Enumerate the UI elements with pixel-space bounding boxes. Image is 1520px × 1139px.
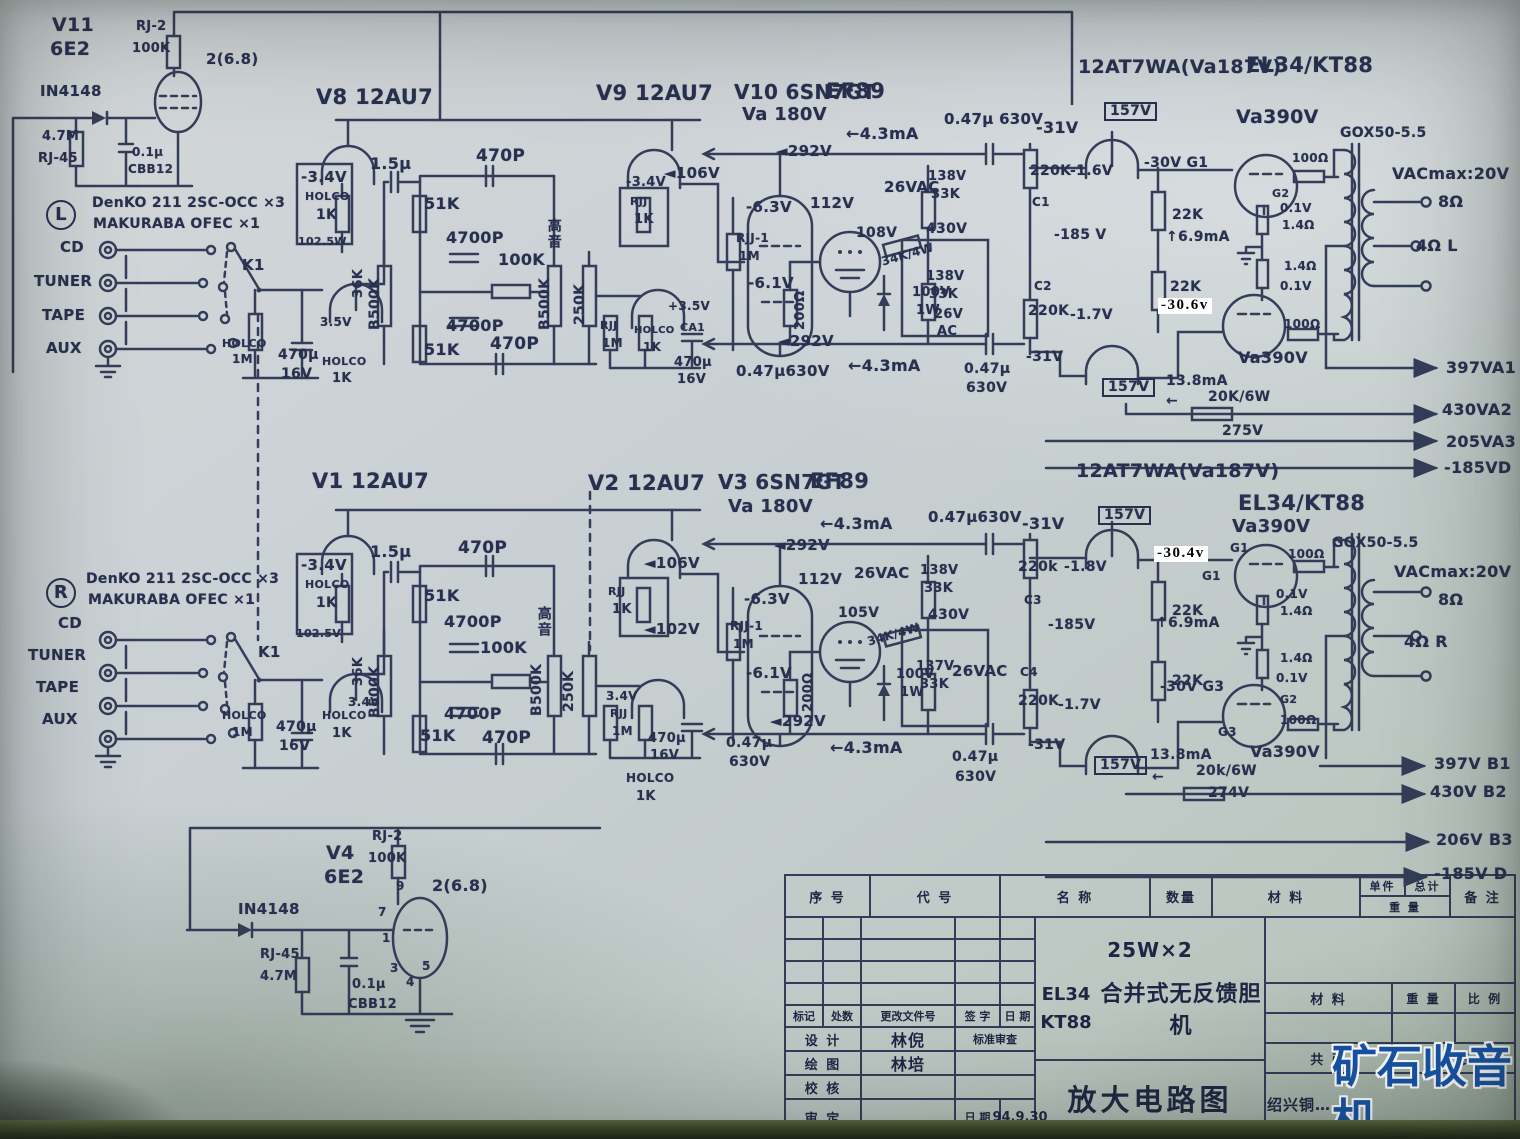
schematic-label: 0.47μ xyxy=(964,362,1010,377)
schematic-label: ← xyxy=(1166,394,1178,409)
schematic-label: 33K xyxy=(920,678,949,692)
schematic-label: 36K xyxy=(352,269,366,298)
schematic-label: CD xyxy=(60,240,84,256)
schematic-label: ◄292V xyxy=(778,334,834,350)
schematic-label: 0.1V xyxy=(1276,588,1308,601)
schematic-photo: V116E2RJ-2100K2(6.8)IN41484.7MRJ-450.1μC… xyxy=(0,0,1520,1139)
schematic-label: CD xyxy=(58,616,82,632)
schematic-label: 220K xyxy=(1028,304,1069,319)
schematic-label: G1 xyxy=(1230,542,1249,555)
schematic-label: 1K xyxy=(643,341,661,354)
schematic-label: C1 xyxy=(1032,196,1050,209)
schematic-label: 0.1μ xyxy=(132,146,163,159)
schematic-label: -31V xyxy=(1026,350,1063,365)
schematic-label: AUX xyxy=(46,341,82,357)
schematic-label: 138V xyxy=(920,564,958,578)
schematic-label: 高音 xyxy=(536,606,551,638)
schematic-label: VACmax:20V xyxy=(1392,166,1509,183)
tb-col-total: 总计 xyxy=(1405,875,1450,896)
schematic-label: C3 xyxy=(1024,594,1042,607)
schematic-label: L xyxy=(46,200,76,230)
schematic-label: 137V xyxy=(916,660,954,674)
schematic-label: GOX50-5.5 xyxy=(1340,126,1426,141)
tb-sheet-no: 第 张 xyxy=(1392,1043,1515,1073)
schematic-label: 1M xyxy=(232,353,253,366)
schematic-label: 20k/6W xyxy=(1196,764,1257,779)
schematic-label: 1.4Ω xyxy=(1280,605,1313,618)
schematic-label: 430V B2 xyxy=(1430,784,1507,801)
tb-col-qty: 数量 xyxy=(1150,875,1212,917)
schematic-label: 13.8mA xyxy=(1166,374,1228,389)
tb-rev-sign: 签 字 xyxy=(955,1005,1000,1027)
schematic-label: HOLCO xyxy=(305,191,350,203)
schematic-label: EF89 xyxy=(810,470,869,492)
schematic-label: 1K xyxy=(316,208,337,223)
schematic-label: 20K/6W xyxy=(1208,390,1270,405)
schematic-label: 206V B3 xyxy=(1436,832,1513,849)
schematic-label: C4 xyxy=(1020,666,1038,679)
schematic-label: ◄106V xyxy=(664,166,720,182)
schematic-label: -1.7V xyxy=(1070,308,1113,323)
schematic-label: 1.4Ω xyxy=(1282,219,1315,232)
schematic-label: 13.8mA xyxy=(1150,748,1212,763)
schematic-label: -1.7V xyxy=(1058,698,1101,713)
schematic-label: 36K xyxy=(352,657,366,686)
schematic-label: 1M xyxy=(602,337,623,350)
schematic-label: 2(6.8) xyxy=(432,878,488,895)
tb-col-index: 序 号 xyxy=(785,875,870,917)
schematic-label: 12AT7WA(Va187V) xyxy=(1076,462,1279,482)
schematic-label: HOLCO xyxy=(222,338,267,350)
schematic-label: 51K xyxy=(424,342,460,359)
schematic-label: 4Ω L xyxy=(1416,238,1458,255)
schematic-label: C2 xyxy=(1034,280,1052,293)
schematic-label: ←4.3mA xyxy=(830,740,903,757)
schematic-label: TAPE xyxy=(36,680,79,696)
schematic-label: 220k xyxy=(1018,560,1058,575)
schematic-label: ←4.3mA xyxy=(846,126,919,143)
schematic-label: -3.4V xyxy=(301,170,347,186)
schematic-label: 高音 xyxy=(546,218,561,250)
schematic-label: 102.5V xyxy=(296,628,341,640)
schematic-label: 100K xyxy=(498,252,545,269)
tb-col-material: 材 料 xyxy=(1212,875,1360,917)
schematic-label: 3.4V xyxy=(348,696,380,709)
schematic-label: Va390V xyxy=(1232,518,1310,537)
schematic-label: IN4148 xyxy=(238,902,300,918)
schematic-label: 630V xyxy=(966,381,1007,396)
schematic-label: 1 xyxy=(382,932,391,945)
schematic-label: ↑6.9mA xyxy=(1156,616,1220,631)
schematic-label: 100Ω xyxy=(1292,152,1328,165)
schematic-label: 470P xyxy=(458,540,507,558)
schematic-label: 157V xyxy=(1098,506,1151,525)
tb-row-check-label: 校 核 xyxy=(785,1075,861,1099)
schematic-label: 7 xyxy=(378,906,387,919)
schematic-label: ◄106V xyxy=(644,556,700,572)
schematic-label: 157V xyxy=(1102,378,1155,397)
schematic-label: HOLCO xyxy=(222,710,267,722)
schematic-label: 138V xyxy=(928,170,966,184)
schematic-label: 1M xyxy=(739,250,760,263)
schematic-label: -31V xyxy=(1028,738,1065,753)
schematic-label: TUNER xyxy=(28,648,86,664)
schematic-label: 1.4Ω xyxy=(1284,260,1317,273)
schematic-label: 470P xyxy=(476,148,525,166)
schematic-label: HOLCO xyxy=(626,772,674,785)
schematic-label: 220K xyxy=(1018,694,1059,709)
schematic-label: 0.47μ630V xyxy=(928,510,1022,526)
tb-inner-scale: 比 例 xyxy=(1455,983,1515,1013)
schematic-label: RJ-45 xyxy=(260,948,300,962)
schematic-label: -30V G3 xyxy=(1160,680,1224,695)
schematic-label: V8 12AU7 xyxy=(316,86,433,108)
schematic-label: 205VA3 xyxy=(1446,434,1516,451)
schematic-label: B500K xyxy=(530,664,545,716)
schematic-label: 16V xyxy=(677,373,706,387)
schematic-label: 470μ xyxy=(674,356,712,370)
schematic-label: RJ-2 xyxy=(372,830,403,844)
schematic-label: 100K xyxy=(132,42,170,56)
schematic-label: RJJ xyxy=(608,586,626,598)
schematic-label: VACmax:20V xyxy=(1394,564,1511,581)
schematic-label: K1 xyxy=(242,258,265,274)
schematic-label: R xyxy=(46,578,76,608)
schematic-label: Va390V xyxy=(1250,744,1320,761)
schematic-label: 200Ω xyxy=(802,673,816,712)
schematic-label: RJJ xyxy=(600,320,618,332)
schematic-label: CBB12 xyxy=(348,998,397,1012)
schematic-label: RJJ-1 xyxy=(730,620,763,633)
schematic-label: B500K xyxy=(368,278,383,330)
schematic-label: 5 xyxy=(422,960,431,973)
schematic-label: 0.1V xyxy=(1280,280,1312,293)
schematic-label: Va390V xyxy=(1236,108,1319,128)
schematic-label: 1K xyxy=(332,727,352,741)
schematic-label: 26V xyxy=(934,308,963,322)
schematic-label: 1K xyxy=(612,603,632,617)
schematic-label: 6E2 xyxy=(324,868,364,888)
title-block: 序 号 代 号 名 称 数量 材 料 单件 总计 重 量 备 注 标记 处数 更… xyxy=(785,875,1515,1135)
tb-project-tube2: KT88 xyxy=(1035,1008,1097,1036)
schematic-label: Va 180V xyxy=(728,498,813,517)
schematic-label: V9 12AU7 xyxy=(596,82,713,104)
schematic-label: G2 xyxy=(1280,694,1297,706)
schematic-label: 0.47μ 630V xyxy=(944,112,1043,128)
tb-col-unit: 单件 xyxy=(1360,875,1405,896)
tb-col-weight: 重 量 xyxy=(1360,896,1450,917)
schematic-label: 100K xyxy=(368,852,406,866)
schematic-label: 1.4Ω xyxy=(1280,652,1313,665)
schematic-label: 0.1μ xyxy=(352,978,386,992)
schematic-label: 220K-1.6V xyxy=(1030,164,1113,179)
schematic-label: 1K xyxy=(316,596,337,611)
schematic-label: 1M xyxy=(232,726,253,739)
schematic-label: -30.6v xyxy=(1158,298,1212,314)
schematic-label: 22K xyxy=(1170,280,1201,295)
schematic-label: 16V xyxy=(279,739,310,754)
schematic-label: 1M xyxy=(612,725,633,738)
schematic-label: -185V xyxy=(1048,618,1095,633)
tb-project-title: 合并式无反馈胆机 xyxy=(1097,977,1265,1039)
tb-col-name: 名 称 xyxy=(1000,875,1150,917)
schematic-label: ◄292V xyxy=(774,538,830,554)
schematic-label: V4 xyxy=(326,844,355,864)
schematic-label: DenKO 211 2SC-OCC ×3 xyxy=(92,196,285,211)
schematic-label: 470P xyxy=(482,730,531,748)
schematic-label: 157V xyxy=(1104,102,1157,121)
schematic-label: HOLCO xyxy=(322,356,367,368)
schematic-label: G3 xyxy=(1218,726,1237,739)
schematic-label: 1M xyxy=(733,638,754,651)
schematic-label: 138V xyxy=(926,270,964,284)
schematic-label: GOX50-5.5 xyxy=(1332,536,1418,551)
schematic-label: HOLCO xyxy=(322,710,367,722)
schematic-label: G1 xyxy=(1202,570,1221,583)
schematic-label: 33K xyxy=(929,288,958,302)
schematic-label: 51K xyxy=(420,728,456,745)
schematic-label: 397VA1 xyxy=(1446,360,1516,377)
schematic-label: 0.47μ630V xyxy=(736,364,830,380)
schematic-label: 100K xyxy=(480,640,527,657)
schematic-label: 0.47μ xyxy=(952,750,998,765)
schematic-label: 470μ xyxy=(648,732,686,746)
schematic-label: 250K xyxy=(573,284,588,325)
schematic-label: 630V xyxy=(729,755,770,770)
tb-row-design-label: 设 计 xyxy=(785,1027,861,1051)
schematic-label: 100Ω xyxy=(1288,548,1324,561)
schematic-label: 4700P xyxy=(446,230,504,247)
schematic-label: 430VA2 xyxy=(1442,402,1512,419)
schematic-label: 16V xyxy=(650,749,679,763)
tb-rev-date: 日 期 xyxy=(1000,1005,1035,1027)
schematic-label: 0.47μ xyxy=(726,736,772,751)
schematic-label: 51K xyxy=(424,588,460,605)
schematic-label: 2(6.8) xyxy=(206,52,259,68)
schematic-label: K1 xyxy=(258,645,281,661)
schematic-label: CBB12 xyxy=(128,163,173,176)
schematic-label: -31V xyxy=(1022,516,1065,533)
schematic-label: RJJ xyxy=(610,708,628,720)
schematic-label: 8Ω xyxy=(1438,592,1463,609)
schematic-label: 112V xyxy=(798,572,842,588)
schematic-label: HOLCO xyxy=(634,326,675,337)
schematic-label: -30.4v xyxy=(1154,546,1208,562)
schematic-label: 33K xyxy=(931,188,960,202)
schematic-label: -31V xyxy=(1036,120,1079,137)
schematic-label: 4700P xyxy=(444,614,502,631)
schematic-label: B500K xyxy=(368,666,383,718)
schematic-label: HOLCO xyxy=(305,579,350,591)
schematic-label: -1.8V xyxy=(1064,560,1107,575)
schematic-label: -30V G1 xyxy=(1144,156,1208,171)
schematic-label: 470P xyxy=(490,336,539,354)
schematic-label: RJ-2 xyxy=(136,20,167,34)
schematic-label: 1K xyxy=(636,790,656,804)
schematic-label: 4 xyxy=(406,976,415,989)
schematic-label: EL34/KT88 xyxy=(1238,492,1365,514)
tb-row-design-extra: 标准审查 xyxy=(955,1027,1035,1051)
schematic-label: -6.3V xyxy=(746,200,792,216)
schematic-label: 1.5μ xyxy=(370,544,411,561)
schematic-label: 51K xyxy=(424,196,460,213)
schematic-label: 470μ xyxy=(276,720,317,735)
schematic-label: +3.5V xyxy=(668,300,710,313)
tb-row-design-value: 林倪 xyxy=(861,1027,955,1051)
schematic-label: 3.4V xyxy=(606,690,638,703)
schematic-label: 4.7M xyxy=(260,970,297,984)
schematic-label: TUNER xyxy=(34,274,92,290)
schematic-label: ←4.3mA xyxy=(848,358,921,375)
schematic-label: 16V xyxy=(281,367,312,382)
schematic-label: 0.1V xyxy=(1276,672,1308,685)
schematic-label: AC xyxy=(937,325,957,339)
schematic-label: MAKURABA OFEC ×1 xyxy=(88,593,255,608)
schematic-label: V11 xyxy=(52,16,94,36)
schematic-label: EF89 xyxy=(826,80,885,102)
schematic-label: 105V xyxy=(838,606,879,621)
schematic-label: 3 xyxy=(390,962,399,975)
schematic-label: ↑6.9mA xyxy=(1166,230,1230,245)
schematic-label: Va390V xyxy=(1238,350,1308,367)
schematic-label: -3.4V xyxy=(626,176,666,190)
schematic-label: CA1 xyxy=(680,322,705,334)
schematic-label: ◄292V xyxy=(770,714,826,730)
schematic-label: ◄102V xyxy=(644,622,700,638)
schematic-label: 102.5W xyxy=(298,236,347,248)
schematic-label: 22K xyxy=(1172,208,1203,223)
schematic-label: DenKO 211 2SC-OCC ×3 xyxy=(86,572,279,587)
tb-project-tube1: EL34 xyxy=(1035,980,1097,1008)
schematic-label: 4Ω R xyxy=(1404,634,1448,651)
schematic-label: 1.5μ xyxy=(370,156,411,173)
tb-sheets-total: 共 张 xyxy=(1265,1043,1392,1073)
schematic-label: IN4148 xyxy=(40,84,102,100)
schematic-label: 430V xyxy=(928,608,969,623)
schematic-label: 6E2 xyxy=(50,40,90,60)
schematic-label: 100Ω xyxy=(1280,714,1316,727)
schematic-label: 1K xyxy=(634,213,654,227)
schematic-label: 275V xyxy=(1222,424,1263,439)
schematic-label: Va 180V xyxy=(742,106,827,125)
schematic-label: -6.3V xyxy=(744,592,790,608)
schematic-label: 26VAC xyxy=(854,566,910,582)
tb-col-notes: 备 注 xyxy=(1450,875,1515,917)
schematic-label: 9 xyxy=(396,880,405,893)
schematic-label: 0.1V xyxy=(1280,202,1312,215)
schematic-label: 200Ω xyxy=(794,291,808,330)
photo-bottom-edge xyxy=(0,1120,1520,1139)
schematic-label: RJJ-1 xyxy=(736,232,769,245)
schematic-label: -3.4V xyxy=(301,558,347,574)
schematic-label: TAPE xyxy=(42,308,85,324)
schematic-label: -6.1V xyxy=(746,666,792,682)
schematic-label: 3.5V xyxy=(320,316,352,329)
tb-inner-material: 材 料 xyxy=(1265,983,1392,1013)
schematic-label: -185 V xyxy=(1054,228,1107,243)
schematic-label: MAKURABA OFEC ×1 xyxy=(93,217,260,232)
schematic-label: 112V xyxy=(810,196,854,212)
schematic-label: 1K xyxy=(332,372,352,386)
schematic-label: AUX xyxy=(42,712,78,728)
schematic-label: 4.7M xyxy=(42,130,79,144)
schematic-label: ◄292V xyxy=(776,144,832,160)
tb-col-code: 代 号 xyxy=(870,875,1000,917)
schematic-label: 4700P xyxy=(446,318,504,335)
schematic-label: 430V xyxy=(926,222,967,237)
tb-rev-count: 处数 xyxy=(823,1005,861,1027)
schematic-label: 250K xyxy=(562,671,577,712)
schematic-label: 34K/4W xyxy=(866,621,921,648)
tb-project-power: 25W×2 xyxy=(1035,925,1265,975)
schematic-label: V2 12AU7 xyxy=(588,472,705,494)
schematic-label: ←4.3mA xyxy=(820,516,893,533)
schematic-label: B500K xyxy=(538,278,553,330)
schematic-label: ← xyxy=(1152,770,1164,785)
schematic-label: V1 12AU7 xyxy=(312,470,429,492)
schematic-label: EL34/KT88 xyxy=(1246,54,1373,76)
schematic-label: 34K/4W xyxy=(880,241,935,268)
schematic-label: -185VD xyxy=(1444,460,1512,477)
schematic-label: -6.1V xyxy=(748,276,794,292)
schematic-label: 4700P xyxy=(444,706,502,723)
schematic-label: 274V xyxy=(1208,786,1249,801)
tb-inner-weight: 重 量 xyxy=(1392,983,1455,1013)
schematic-label: 630V xyxy=(955,770,996,785)
tb-row-draw-label: 绘 图 xyxy=(785,1051,861,1075)
schematic-label: 157V xyxy=(1094,756,1147,775)
schematic-label: 33K xyxy=(924,582,953,596)
schematic-label: 397V B1 xyxy=(1434,756,1511,773)
schematic-label: 26VAC xyxy=(952,664,1008,680)
schematic-label: 470μ xyxy=(278,348,319,363)
schematic-label: 108V xyxy=(856,226,897,241)
tb-rev-docno: 更改文件号 xyxy=(861,1005,955,1027)
tb-rev-mark: 标记 xyxy=(785,1005,823,1027)
schematic-label: G2 xyxy=(1272,188,1289,200)
schematic-label: 100Ω xyxy=(1284,318,1320,331)
tb-row-draw-value: 林培 xyxy=(861,1051,955,1075)
schematic-label: 8Ω xyxy=(1438,194,1463,211)
schematic-label: RJ-45 xyxy=(38,152,78,166)
schematic-label: RJJ xyxy=(630,196,648,208)
